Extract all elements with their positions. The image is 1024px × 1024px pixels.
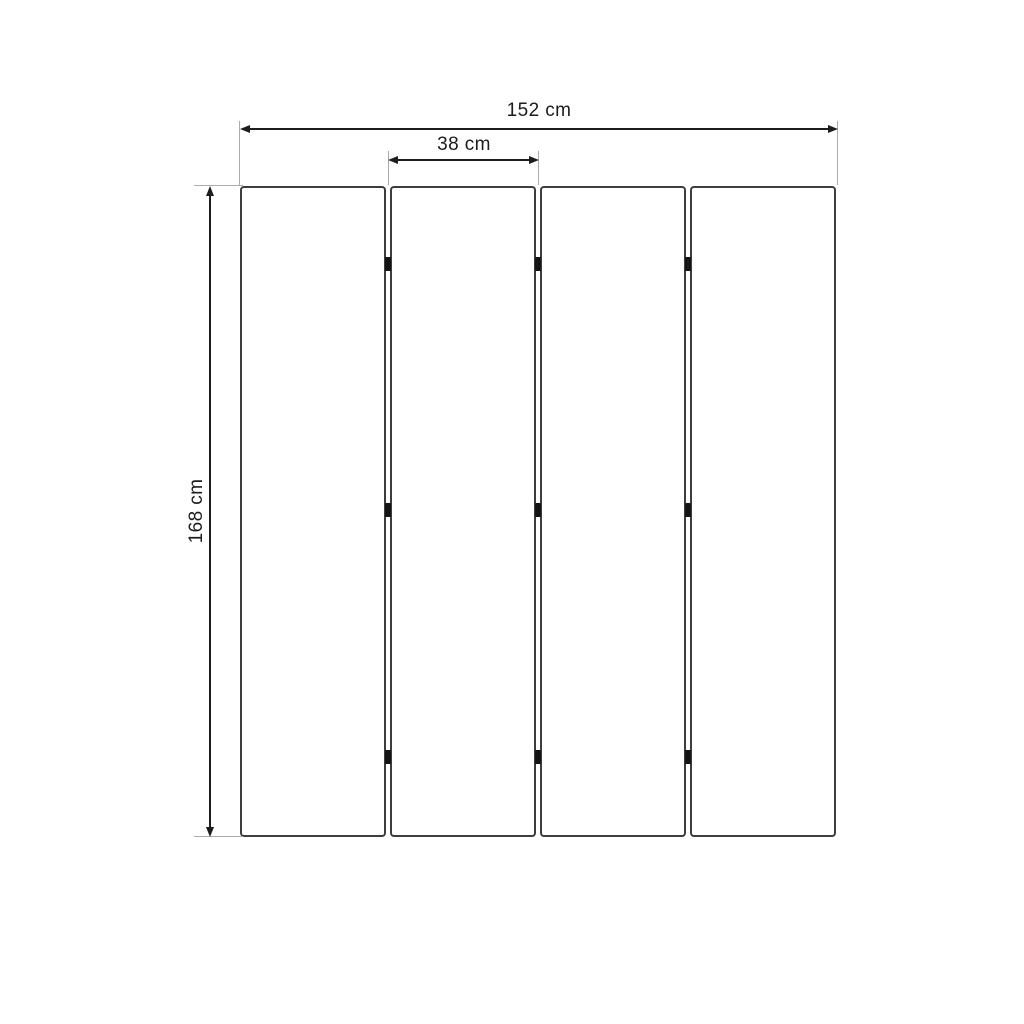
hinge-marker <box>685 503 691 517</box>
hinge-marker <box>685 750 691 764</box>
panel-1 <box>240 186 386 837</box>
hinge-marker <box>535 257 541 271</box>
extension-line-height-top <box>194 185 243 186</box>
panel-3 <box>540 186 686 837</box>
dimension-line-total-width <box>243 128 835 130</box>
hinge-marker <box>535 503 541 517</box>
hinge-marker <box>385 750 391 764</box>
hinge-marker <box>385 503 391 517</box>
dimension-diagram: 152 cm 38 cm 168 cm <box>0 0 1024 1024</box>
panel-2 <box>390 186 536 837</box>
hinge-marker <box>685 257 691 271</box>
arrowhead-right-icon <box>529 156 539 164</box>
arrowhead-left-icon <box>240 125 250 133</box>
hinge-marker <box>535 750 541 764</box>
extension-line-height-bottom <box>194 836 243 837</box>
total-width-label: 152 cm <box>240 100 838 122</box>
height-label: 168 cm <box>186 471 208 551</box>
dimension-line-panel-width <box>391 159 535 161</box>
hinge-marker <box>385 257 391 271</box>
arrowhead-down-icon <box>206 827 214 837</box>
panel-4 <box>690 186 836 837</box>
panel-width-label: 38 cm <box>389 134 539 156</box>
arrowhead-left-icon <box>388 156 398 164</box>
arrowhead-right-icon <box>828 125 838 133</box>
dimension-line-height <box>209 189 211 834</box>
arrowhead-up-icon <box>206 186 214 196</box>
